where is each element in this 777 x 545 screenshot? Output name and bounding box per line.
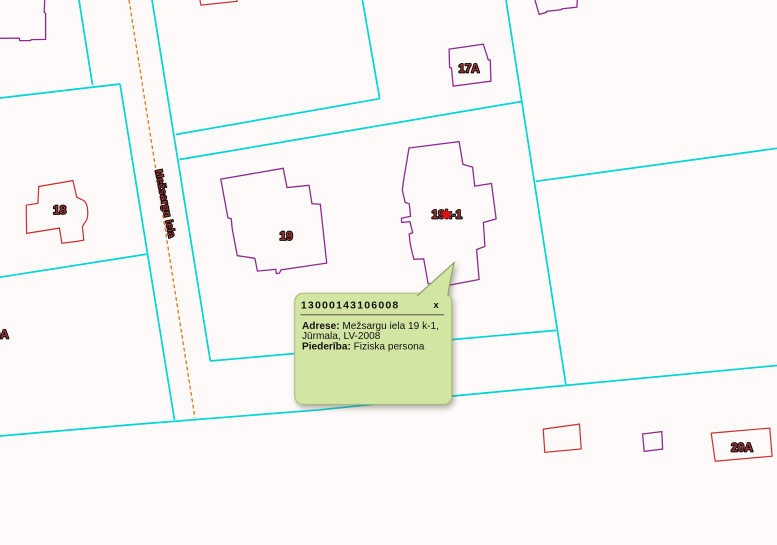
svg-text:17A: 17A <box>459 63 480 75</box>
svg-text:Piederība: Fiziska persona: Piederība: Fiziska persona <box>302 342 425 353</box>
svg-text:0A: 0A <box>0 328 9 342</box>
svg-text:Jūrmala, LV-2008: Jūrmala, LV-2008 <box>302 331 381 342</box>
svg-text:18: 18 <box>53 203 67 217</box>
svg-text:20A: 20A <box>731 441 753 455</box>
svg-text:19: 19 <box>280 229 294 243</box>
svg-text:13000143106008: 13000143106008 <box>301 299 400 311</box>
svg-text:x: x <box>434 300 440 311</box>
